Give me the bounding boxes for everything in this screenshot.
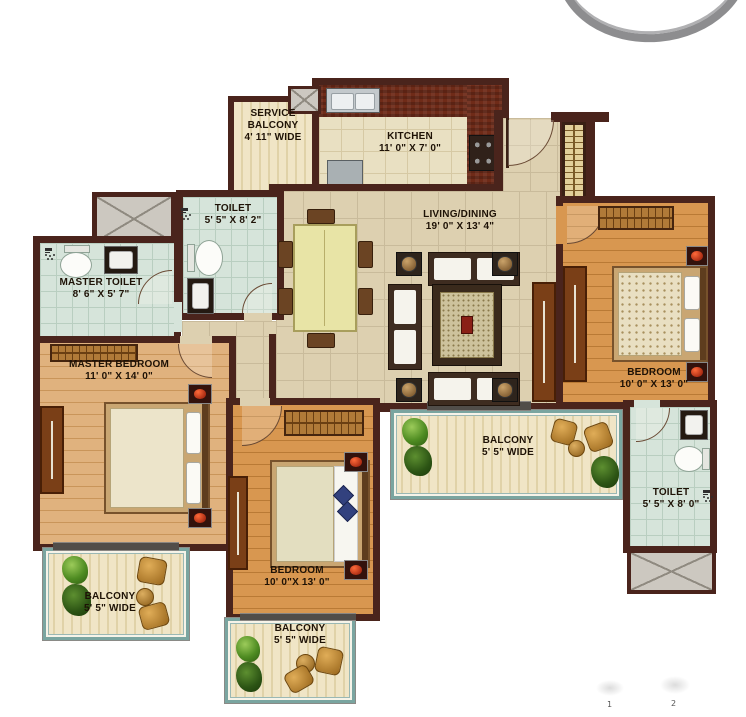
room-name: TOILET	[632, 487, 710, 499]
wardrobe-icon	[598, 206, 674, 230]
room-name: BALCONY	[256, 623, 344, 635]
room-label-bedroom-bottom: BEDROOM 10' 0"X 13' 0"	[240, 565, 354, 589]
headboard	[700, 268, 706, 360]
headboard	[202, 404, 208, 512]
room-label-balcony-bottom: BALCONY 5' 5" WIDE	[256, 623, 344, 647]
wc-icon	[195, 240, 223, 276]
dresser-icon	[40, 406, 64, 494]
room-name: TOILET	[186, 203, 280, 215]
room-label-service-balcony: SERVICE BALCONY 4' 11" WIDE	[236, 108, 310, 144]
side-table-icon	[492, 378, 518, 402]
door-opening	[556, 206, 567, 244]
room-dims: 5' 5" WIDE	[256, 635, 344, 647]
room-name: BEDROOM	[598, 367, 710, 379]
logo-ring-icon	[550, 0, 746, 50]
scale-mark	[660, 676, 690, 694]
washbasin-icon	[187, 278, 214, 314]
plant-icon	[591, 456, 619, 488]
room-dims: 11' 0" X 7' 0"	[348, 143, 472, 155]
door-opening	[240, 398, 270, 406]
room-dims: 10' 0"X 13' 0"	[240, 577, 354, 589]
room-label-balcony-right: BALCONY 5' 5" WIDE	[460, 435, 556, 459]
balcony-door-threshold	[240, 613, 356, 621]
bedside-table-icon	[188, 384, 212, 404]
bedside-table-icon	[188, 508, 212, 528]
room-name: BALCONY	[460, 435, 556, 447]
wall	[269, 334, 276, 405]
dining-chair-icon	[307, 209, 335, 224]
shoe-cabinet-icon	[562, 122, 586, 200]
door-opening	[180, 336, 212, 344]
wc-icon	[60, 252, 92, 278]
room-label-kitchen: KITCHEN 11' 0" X 7' 0"	[348, 131, 472, 155]
plant-icon	[404, 446, 432, 476]
coffee-table-icon	[432, 284, 502, 366]
room-label-toilet-top: TOILET 5' 5" X 8' 2"	[186, 203, 280, 227]
room-name: KITCHEN	[348, 131, 472, 143]
pillow	[684, 276, 700, 310]
bedside-table-icon	[344, 452, 368, 472]
bed-icon	[612, 266, 708, 362]
mattress	[618, 272, 682, 356]
dining-chair-icon	[358, 241, 373, 268]
pillow	[186, 462, 201, 504]
patio-chair-icon	[314, 646, 345, 677]
wc-tank	[187, 244, 195, 272]
washbasin-icon	[680, 410, 708, 440]
room-label-balcony-left: BALCONY 5' 5" WIDE	[72, 591, 148, 615]
mattress	[276, 466, 334, 562]
room-name: SERVICE BALCONY	[236, 108, 310, 132]
room-dims: 4' 11" WIDE	[236, 132, 310, 144]
mattress	[110, 408, 184, 508]
room-name: MASTER BEDROOM	[50, 359, 188, 371]
pillow	[186, 412, 201, 454]
side-table-icon	[396, 252, 422, 276]
dining-chair-icon	[307, 333, 335, 348]
room-dims: 5' 5" X 8' 2"	[186, 215, 280, 227]
room-dims: 8' 6" X 5' 7"	[44, 289, 158, 301]
room-label-toilet-bottom: TOILET 5' 5" X 8' 0"	[632, 487, 710, 511]
room-dims: 5' 5" WIDE	[72, 603, 148, 615]
dining-chair-icon	[358, 288, 373, 315]
room-dims: 19' 0" X 13' 4"	[396, 221, 524, 233]
door-opening	[174, 302, 182, 332]
scale-number: 1	[607, 700, 612, 709]
wall	[269, 184, 496, 191]
side-table-icon	[396, 378, 422, 402]
plant-icon	[62, 556, 88, 584]
room-dims: 5' 5" X 8' 0"	[632, 499, 710, 511]
room-name: BEDROOM	[240, 565, 354, 577]
sofa-icon	[388, 284, 422, 370]
room-name: LIVING/DINING	[396, 209, 524, 221]
wc-tank	[702, 448, 710, 470]
scale-mark	[596, 680, 624, 696]
dining-chair-icon	[278, 241, 293, 268]
room-label-bedroom-right: BEDROOM 10' 0" X 13' 0"	[598, 367, 710, 391]
room-dims: 11' 0" X 14' 0"	[50, 371, 188, 383]
kitchen-sink-icon	[326, 88, 380, 113]
room-name: MASTER TOILET	[44, 277, 158, 289]
tv-unit-icon	[532, 282, 556, 402]
room-name: BALCONY	[72, 591, 148, 603]
room-label-master-bedroom: MASTER BEDROOM 11' 0" X 14' 0"	[50, 359, 188, 383]
room-dims: 10' 0" X 13' 0"	[598, 379, 710, 391]
scale-number: 2	[671, 699, 676, 708]
floor-plan-canvas: SERVICE BALCONY 4' 11" WIDE KITCHEN 11' …	[0, 0, 746, 717]
dresser-icon	[563, 266, 587, 382]
room-label-master-toilet: MASTER TOILET 8' 6" X 5' 7"	[44, 277, 158, 301]
stove-icon	[469, 135, 497, 171]
door-opening	[634, 400, 660, 408]
plant-icon	[236, 662, 262, 692]
dresser-icon	[228, 476, 248, 570]
plant-icon	[402, 418, 428, 446]
bed-icon	[270, 460, 370, 568]
bedside-table-icon	[686, 246, 708, 266]
wall	[551, 112, 609, 122]
centerpiece-icon	[461, 316, 473, 334]
dining-table-icon	[293, 224, 357, 332]
headboard	[362, 462, 368, 566]
shower-icon	[44, 248, 57, 263]
balcony-door-threshold	[53, 542, 179, 551]
room-dims: 5' 5" WIDE	[460, 447, 556, 459]
wall	[586, 112, 595, 204]
washbasin-icon	[104, 246, 138, 274]
side-table-icon	[492, 252, 518, 276]
bed-icon	[104, 402, 210, 514]
corridor-floor	[236, 336, 269, 398]
wardrobe-icon	[284, 410, 364, 436]
patio-table-icon	[568, 440, 585, 457]
pillow	[684, 318, 700, 352]
wc-icon	[674, 446, 704, 472]
wall	[494, 110, 503, 191]
duct-shaft-icon	[627, 549, 716, 594]
room-label-living-dining: LIVING/DINING 19' 0" X 13' 4"	[396, 209, 524, 233]
patio-chair-icon	[136, 556, 168, 586]
dining-chair-icon	[278, 288, 293, 315]
door-opening	[244, 313, 272, 321]
